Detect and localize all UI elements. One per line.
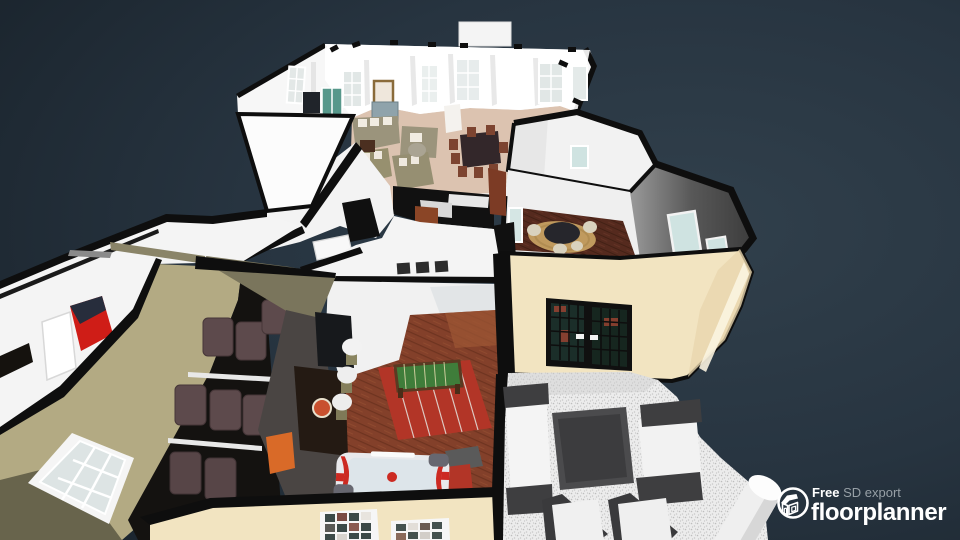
svg-text:Free SD export: Free SD export [812, 485, 901, 500]
svg-text:floorplanner: floorplanner [811, 499, 946, 526]
